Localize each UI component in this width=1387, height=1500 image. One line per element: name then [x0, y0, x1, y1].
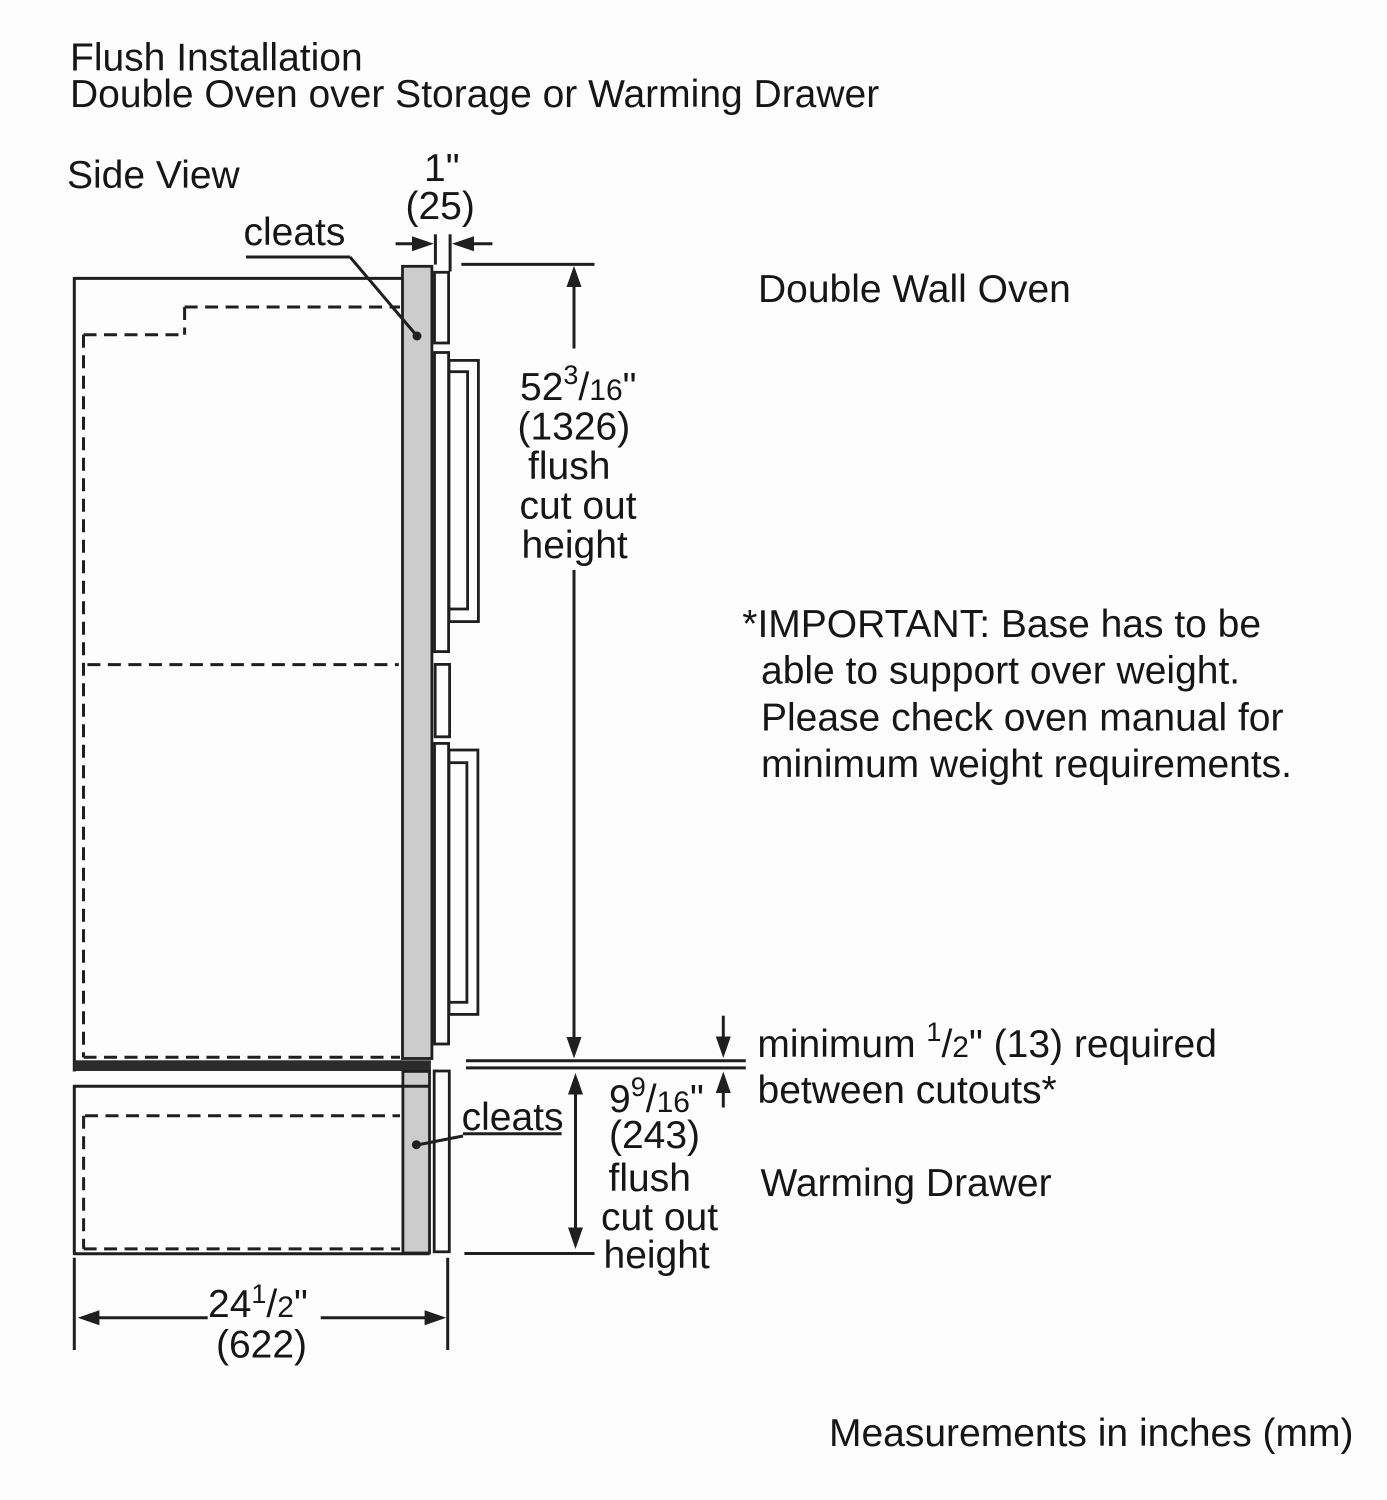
svg-text:Measurements in inches (mm): Measurements in inches (mm): [829, 1412, 1353, 1455]
svg-text:flush: flush: [528, 445, 610, 488]
svg-text:Side View: Side View: [67, 154, 241, 197]
svg-text:Double Oven over Storage or Wa: Double Oven over Storage or Warming Draw…: [70, 73, 879, 116]
svg-text:(1326): (1326): [518, 406, 631, 449]
svg-text:between cutouts*: between cutouts*: [758, 1069, 1057, 1112]
svg-text:*IMPORTANT: Base has to be: *IMPORTANT: Base has to be: [742, 603, 1261, 646]
svg-text:height: height: [522, 524, 628, 567]
svg-text:minimum weight requirements.: minimum weight requirements.: [761, 743, 1292, 786]
svg-text:(243): (243): [609, 1114, 700, 1157]
svg-text:Double Wall Oven: Double Wall Oven: [758, 268, 1071, 311]
svg-text:cut out: cut out: [601, 1196, 718, 1239]
svg-text:Warming Drawer: Warming Drawer: [761, 1162, 1052, 1205]
svg-text:1": 1": [424, 147, 460, 190]
svg-text:flush: flush: [609, 1157, 691, 1200]
svg-text:(25): (25): [406, 185, 475, 228]
svg-text:(622): (622): [216, 1324, 307, 1367]
svg-text:able to support over weight.: able to support over weight.: [761, 650, 1240, 693]
svg-text:minimum 1/2" (13) required: minimum 1/2" (13) required: [757, 1017, 1217, 1066]
svg-text:height: height: [604, 1234, 710, 1277]
svg-text:Please check oven manual for: Please check oven manual for: [761, 696, 1283, 739]
svg-text:cleats: cleats: [244, 211, 346, 254]
svg-text:cut out: cut out: [520, 485, 637, 528]
